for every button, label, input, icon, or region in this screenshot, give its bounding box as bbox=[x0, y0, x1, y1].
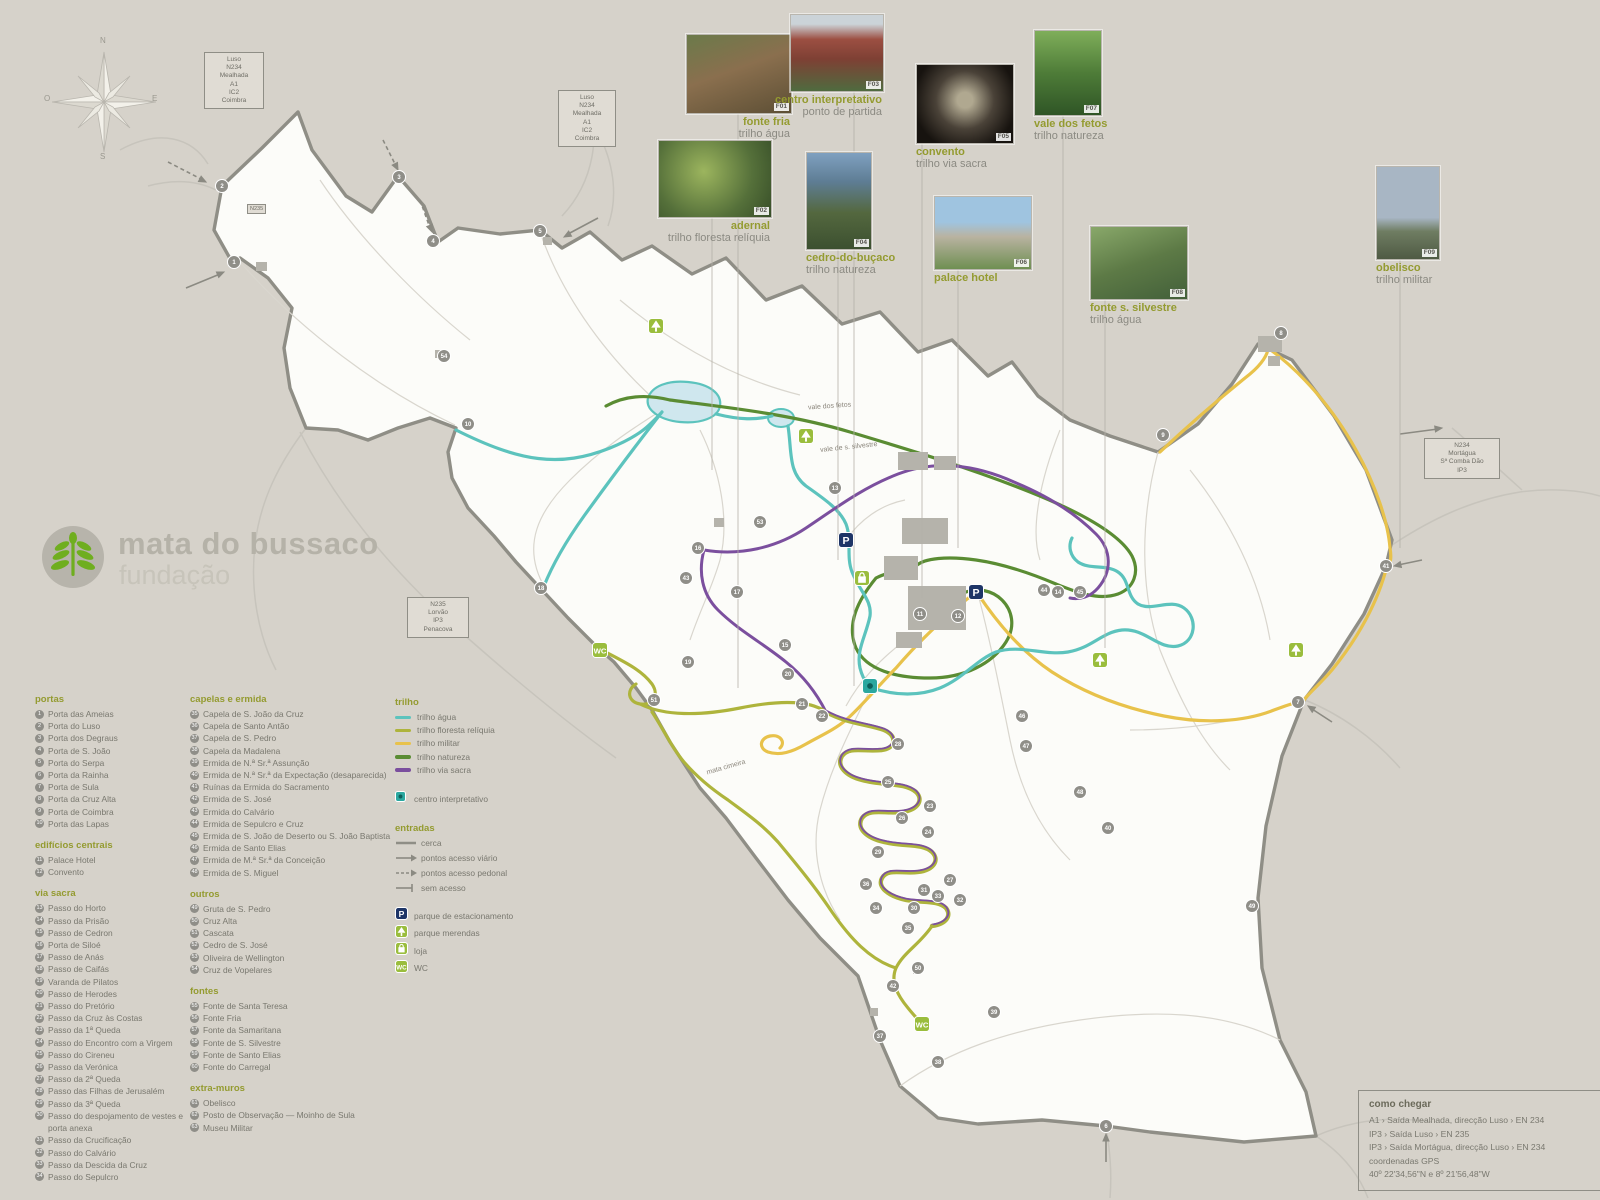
trail-legend-item: trilho militar bbox=[395, 737, 585, 750]
photo-label-palace-hotel: palace hotel bbox=[934, 272, 1064, 284]
svg-text:32: 32 bbox=[957, 898, 964, 904]
legend-centro-interpretativo: centro interpretativo bbox=[395, 791, 585, 807]
map-marker-29: 29 bbox=[872, 846, 885, 859]
svg-text:WC: WC bbox=[594, 647, 607, 656]
map-marker-44: 44 bbox=[1038, 584, 1051, 597]
road-sign-luso-nw: LusoN234MealhadaA1IC2Coimbra bbox=[204, 52, 264, 109]
legend-item: 54Cruz de Vopelares bbox=[190, 964, 402, 976]
svg-text:14: 14 bbox=[1055, 590, 1062, 596]
legend-list-fontes: 55Fonte de Santa Teresa56Fonte Fria57Fon… bbox=[190, 1000, 402, 1073]
map-marker-21: 21 bbox=[796, 698, 809, 711]
map-marker-54: 54 bbox=[438, 350, 451, 363]
legend-item: 60Fonte do Carregal bbox=[190, 1061, 402, 1073]
map-marker-6: 6 bbox=[1100, 1120, 1113, 1133]
legend-header-capelas: capelas e ermida bbox=[190, 694, 402, 705]
como-chegar-title: como chegar bbox=[1369, 1099, 1600, 1110]
legend-list-portas: 1Porta das Ameias2Porta do Luso3Porta do… bbox=[35, 708, 187, 830]
legend-item: 20Passo de Herodes bbox=[35, 988, 187, 1000]
svg-text:21: 21 bbox=[799, 702, 806, 708]
map-facility-wc-icon: WC bbox=[593, 643, 608, 658]
legend-item: 5Porta do Serpa bbox=[35, 757, 187, 769]
map-marker-33: 33 bbox=[932, 890, 945, 903]
svg-text:35: 35 bbox=[905, 926, 912, 932]
legend-item: 37Capela de S. Pedro bbox=[190, 732, 402, 744]
svg-text:50: 50 bbox=[915, 966, 922, 972]
svg-text:43: 43 bbox=[683, 576, 690, 582]
text-line: Mealhada bbox=[562, 110, 612, 118]
road-sign-mortagua: N234MortáguaSª Comba DãoIP3 bbox=[1424, 438, 1500, 479]
photo-label-fonte-s-silvestre: fonte s. silvestretrilho água bbox=[1090, 302, 1240, 326]
legend-item: 44Ermida de Sepulcro e Cruz bbox=[190, 818, 402, 830]
legend-item: 50Cruz Alta bbox=[190, 915, 402, 927]
legend-item: 53Oliveira de Wellington bbox=[190, 952, 402, 964]
map-marker-1: 1 bbox=[228, 256, 241, 269]
map-marker-41: 41 bbox=[1380, 560, 1393, 573]
photo-label-fonte-fria: fonte friatrilho água bbox=[660, 116, 790, 140]
legend-item: 29Passo da 3ª Queda bbox=[35, 1098, 187, 1110]
legend-item: 55Fonte de Santa Teresa bbox=[190, 1000, 402, 1012]
legend-item: 19Varanda de Pilatos bbox=[35, 976, 187, 988]
svg-text:42: 42 bbox=[890, 984, 897, 990]
svg-text:10: 10 bbox=[465, 422, 472, 428]
map-marker-30: 30 bbox=[908, 902, 921, 915]
legend-item: 3Porta dos Degraus bbox=[35, 732, 187, 744]
legend-item: 24Passo do Encontro com a Virgem bbox=[35, 1037, 187, 1049]
legend-item: 45Ermida de S. João de Deserto ou S. Joã… bbox=[190, 830, 402, 842]
legend-item: 4Porta de S. João bbox=[35, 745, 187, 757]
map-marker-14: 14 bbox=[1052, 586, 1065, 599]
text-line: IP3 › Saída Luso › EN 235 bbox=[1369, 1128, 1600, 1142]
compass-rose bbox=[44, 40, 164, 164]
legend-item: 48Ermida de S. Miguel bbox=[190, 867, 402, 879]
legend-column-1: portas 1Porta das Ameias2Porta do Luso3P… bbox=[35, 694, 187, 1183]
svg-text:19: 19 bbox=[685, 660, 692, 666]
svg-text:P: P bbox=[972, 587, 979, 599]
svg-text:P: P bbox=[842, 535, 849, 547]
map-marker-5: 5 bbox=[534, 225, 547, 238]
legend-item: 30Passo do despojamento de vestes e port… bbox=[35, 1110, 187, 1134]
legend-item: 34Passo do Sepulcro bbox=[35, 1171, 187, 1183]
map-marker-48: 48 bbox=[1074, 786, 1087, 799]
entrance-legend-item: sem acesso bbox=[395, 882, 585, 897]
svg-text:30: 30 bbox=[911, 906, 918, 912]
map-facility-shop-icon bbox=[855, 571, 870, 586]
text-line: IP3 › Saída Mortágua, direcção Luso › EN… bbox=[1369, 1141, 1600, 1155]
map-marker-18: 18 bbox=[535, 582, 548, 595]
legend-column-3: trilho trilho águatrilho floresta relíqu… bbox=[395, 697, 585, 977]
legend-list-extra-muros: 61Obelisco62Posto de Observação — Moinho… bbox=[190, 1097, 402, 1134]
compass-o: O bbox=[44, 94, 50, 103]
text-line: A1 bbox=[208, 81, 260, 89]
text-line: Penacova bbox=[411, 626, 465, 634]
legend-item: 43Ermida do Calvário bbox=[190, 806, 402, 818]
svg-text:20: 20 bbox=[785, 672, 792, 678]
legend-header-extra-muros: extra-muros bbox=[190, 1083, 402, 1094]
legend-header-portas: portas bbox=[35, 694, 187, 705]
compass-e: E bbox=[152, 94, 157, 103]
legend-item: 1Porta das Ameias bbox=[35, 708, 187, 720]
legend-item: 10Porta das Lapas bbox=[35, 818, 187, 830]
map-facility-centro-icon bbox=[863, 679, 878, 694]
text-line: Coimbra bbox=[562, 135, 612, 143]
text-line: N234 bbox=[208, 64, 260, 72]
legend-list-entradas: cercapontos acesso viáriopontos acesso p… bbox=[395, 837, 585, 898]
text-line: IC2 bbox=[562, 127, 612, 135]
text-line: IP3 bbox=[411, 617, 465, 625]
legend-item: 21Passo do Pretório bbox=[35, 1000, 187, 1012]
legend-column-2: capelas e ermida 35Capela de S. João da … bbox=[190, 694, 402, 1134]
svg-text:40: 40 bbox=[1105, 826, 1112, 832]
legend-list-trilho: trilho águatrilho floresta relíquiatrilh… bbox=[395, 711, 585, 777]
logo-title: mata do bussaco bbox=[118, 526, 379, 562]
text-line: N235 bbox=[411, 601, 465, 609]
svg-text:44: 44 bbox=[1041, 588, 1048, 594]
svg-text:33: 33 bbox=[935, 894, 942, 900]
legend-header-trilho: trilho bbox=[395, 697, 585, 708]
map-marker-22: 22 bbox=[816, 710, 829, 723]
map-marker-49: 49 bbox=[1246, 900, 1259, 913]
map-marker-32: 32 bbox=[954, 894, 967, 907]
text-line: 40º 22'34,56"N e 8º 21'56,48"W bbox=[1369, 1168, 1600, 1182]
legend-item: 57Fonte da Samaritana bbox=[190, 1024, 402, 1036]
map-marker-27: 27 bbox=[944, 874, 957, 887]
svg-text:53: 53 bbox=[757, 520, 764, 526]
trail-legend-item: trilho natureza bbox=[395, 751, 585, 764]
como-chegar-box: como chegar A1 › Saída Mealhada, direcçã… bbox=[1358, 1090, 1600, 1191]
svg-text:38: 38 bbox=[935, 1060, 942, 1066]
photo-cedro-do-bucaco: F04 bbox=[806, 152, 872, 250]
map-marker-50: 50 bbox=[912, 962, 925, 975]
como-chegar-lines: A1 › Saída Mealhada, direcção Luso › EN … bbox=[1369, 1114, 1600, 1182]
legend-item: 22Passo da Cruz às Costas bbox=[35, 1012, 187, 1024]
legend-header-via-sacra: via sacra bbox=[35, 888, 187, 899]
map-marker-23: 23 bbox=[924, 800, 937, 813]
legend-item: 42Ermida de S. José bbox=[190, 793, 402, 805]
legend-item: 41Ruínas da Ermida do Sacramento bbox=[190, 781, 402, 793]
photo-convento: F05 bbox=[916, 64, 1014, 144]
photo-label-convento: conventotrilho via sacra bbox=[916, 146, 1046, 170]
photo-obelisco: F09 bbox=[1376, 166, 1440, 260]
legend-item: 49Gruta de S. Pedro bbox=[190, 903, 402, 915]
map-marker-9: 9 bbox=[1157, 429, 1170, 442]
map-marker-34: 34 bbox=[870, 902, 883, 915]
text-line: Luso bbox=[208, 56, 260, 64]
text-line: Mealhada bbox=[208, 72, 260, 80]
svg-text:17: 17 bbox=[734, 590, 741, 596]
text-line: Coimbra bbox=[208, 97, 260, 105]
svg-text:29: 29 bbox=[875, 850, 882, 856]
svg-text:39: 39 bbox=[991, 1010, 998, 1016]
map-marker-15: 15 bbox=[779, 639, 792, 652]
text-line: Lorvão bbox=[411, 609, 465, 617]
legend-item: 13Passo do Horto bbox=[35, 902, 187, 914]
svg-text:27: 27 bbox=[947, 878, 954, 884]
map-marker-17: 17 bbox=[731, 586, 744, 599]
svg-text:54: 54 bbox=[441, 354, 448, 360]
compass-s: S bbox=[100, 152, 105, 161]
text-line: Sª Comba Dão bbox=[1428, 458, 1496, 466]
text-line: Mortágua bbox=[1428, 450, 1496, 458]
legend-header-entradas: entradas bbox=[395, 823, 585, 834]
legend-list-via-sacra: 13Passo do Horto14Passo da Prisão15Passo… bbox=[35, 902, 187, 1183]
legend-item: 8Porta da Cruz Alta bbox=[35, 793, 187, 805]
map-marker-7: 7 bbox=[1292, 696, 1305, 709]
map-marker-37: 37 bbox=[874, 1030, 887, 1043]
map-facility-picnic-icon bbox=[799, 429, 814, 444]
map-facility-wc-icon: WC bbox=[915, 1017, 930, 1032]
photo-tag: F09 bbox=[1422, 249, 1437, 257]
legend-item: 63Museu Militar bbox=[190, 1122, 402, 1134]
trail-legend-item: trilho via sacra bbox=[395, 764, 585, 777]
svg-text:36: 36 bbox=[863, 882, 870, 888]
centro-interpretativo-icon bbox=[395, 791, 409, 807]
photo-label-cedro-do-bucaco: cedro-do-buçacotrilho natureza bbox=[806, 252, 936, 276]
legend-item: 58Fonte de S. Silvestre bbox=[190, 1037, 402, 1049]
legend-item: 16Porta de Siloé bbox=[35, 939, 187, 951]
svg-text:23: 23 bbox=[927, 804, 934, 810]
text-line: Luso bbox=[562, 94, 612, 102]
legend-item: 56Fonte Fria bbox=[190, 1012, 402, 1024]
map-facility-p-icon: P bbox=[969, 585, 984, 600]
legend-item: 51Cascata bbox=[190, 927, 402, 939]
legend-item: 61Obelisco bbox=[190, 1097, 402, 1109]
map-facility-picnic-icon bbox=[649, 319, 664, 334]
legend-item: 15Passo de Cedron bbox=[35, 927, 187, 939]
legend-item: 52Cedro de S. José bbox=[190, 939, 402, 951]
legend-item: 32Passo do Calvário bbox=[35, 1147, 187, 1159]
map-marker-4: 4 bbox=[427, 235, 440, 248]
legend-item: 23Passo da 1ª Queda bbox=[35, 1024, 187, 1036]
map-marker-45: 45 bbox=[1074, 586, 1087, 599]
text-line: N234 bbox=[562, 102, 612, 110]
text-line: IC2 bbox=[208, 89, 260, 97]
photo-label-adernal: adernaltrilho floresta relíquia bbox=[610, 220, 770, 244]
entrance-legend-item: cerca bbox=[395, 837, 585, 852]
legend-item: 38Capela da Madalena bbox=[190, 745, 402, 757]
legend-item: 2Porta do Luso bbox=[35, 720, 187, 732]
text-line: coordenadas GPS bbox=[1369, 1155, 1600, 1169]
map-poster: PPWCWC 123456789101841111213141516171920… bbox=[0, 0, 1600, 1200]
facility-legend-item: parque merendas bbox=[395, 925, 585, 943]
svg-text:11: 11 bbox=[917, 612, 924, 618]
map-marker-46: 46 bbox=[1016, 710, 1029, 723]
photo-tag: F06 bbox=[1014, 259, 1029, 267]
svg-text:24: 24 bbox=[925, 830, 932, 836]
compass-n: N bbox=[100, 36, 106, 45]
map-marker-2: 2 bbox=[216, 180, 229, 193]
map-marker-12: 12 bbox=[952, 610, 965, 623]
svg-text:34: 34 bbox=[873, 906, 880, 912]
logo-subtitle: fundação bbox=[119, 560, 230, 591]
svg-text:46: 46 bbox=[1019, 714, 1026, 720]
map-marker-35: 35 bbox=[902, 922, 915, 935]
map-marker-28: 28 bbox=[892, 738, 905, 751]
photo-tag: F08 bbox=[1170, 289, 1185, 297]
photo-label-obelisco: obeliscotrilho militar bbox=[1376, 262, 1496, 286]
map-marker-3: 3 bbox=[393, 171, 406, 184]
svg-text:26: 26 bbox=[899, 816, 906, 822]
road-sign-lorvao: N235LorvãoIP3Penacova bbox=[407, 597, 469, 638]
photo-label-centro-interpretativo: centro interpretativoponto de partida bbox=[702, 94, 882, 118]
svg-text:37: 37 bbox=[877, 1034, 884, 1040]
legend-item: 27Passo da 2ª Queda bbox=[35, 1073, 187, 1085]
map-marker-38: 38 bbox=[932, 1056, 945, 1069]
text-line: IP3 bbox=[1428, 467, 1496, 475]
photo-adernal: F02 bbox=[658, 140, 772, 218]
legend-item: 46Ermida de Santo Elias bbox=[190, 842, 402, 854]
svg-text:P: P bbox=[399, 909, 405, 919]
legend-item: 36Capela de Santo Antão bbox=[190, 720, 402, 732]
text-line: A1 › Saída Mealhada, direcção Luso › EN … bbox=[1369, 1114, 1600, 1128]
legend-item: 47Ermida de M.ª Sr.ª da Conceição bbox=[190, 854, 402, 866]
legend-item: 28Passo das Filhas de Jerusalém bbox=[35, 1085, 187, 1097]
svg-text:41: 41 bbox=[1383, 564, 1390, 570]
map-marker-11: 11 bbox=[914, 608, 927, 621]
map-marker-13: 13 bbox=[829, 482, 842, 495]
legend-list-outros: 49Gruta de S. Pedro50Cruz Alta51Cascata5… bbox=[190, 903, 402, 976]
legend-list-facilities: Pparque de estacionamentoparque merendas… bbox=[395, 907, 585, 977]
trail-legend-item: trilho água bbox=[395, 711, 585, 724]
legend-list-edificios: 11Palace Hotel12Convento bbox=[35, 854, 187, 878]
svg-text:49: 49 bbox=[1249, 904, 1256, 910]
photo-tag: F07 bbox=[1084, 105, 1099, 113]
map-marker-43: 43 bbox=[680, 572, 693, 585]
legend-item: 39Ermida de N.ª Sr.ª Assunção bbox=[190, 757, 402, 769]
map-marker-19: 19 bbox=[682, 656, 695, 669]
facility-legend-item: Pparque de estacionamento bbox=[395, 907, 585, 925]
foundation-logo-icon bbox=[40, 524, 106, 590]
svg-text:13: 13 bbox=[832, 486, 839, 492]
svg-text:WC: WC bbox=[396, 964, 407, 971]
legend-item: 31Passo da Crucificação bbox=[35, 1134, 187, 1146]
photo-centro-interpretativo: F03 bbox=[790, 14, 884, 92]
map-marker-25: 25 bbox=[882, 776, 895, 789]
svg-text:12: 12 bbox=[955, 614, 962, 620]
legend-item: 7Porta de Sula bbox=[35, 781, 187, 793]
legend-item: 33Passo da Descida da Cruz bbox=[35, 1159, 187, 1171]
map-marker-10: 10 bbox=[462, 418, 475, 431]
svg-text:31: 31 bbox=[921, 888, 928, 894]
svg-text:47: 47 bbox=[1023, 744, 1030, 750]
legend-item: 35Capela de S. João da Cruz bbox=[190, 708, 402, 720]
photo-vale-dos-fetos: F07 bbox=[1034, 30, 1102, 116]
legend-item: 12Convento bbox=[35, 866, 187, 878]
legend-item: 11Palace Hotel bbox=[35, 854, 187, 866]
legend-list-capelas: 35Capela de S. João da Cruz36Capela de S… bbox=[190, 708, 402, 879]
trail-legend-item: trilho floresta relíquia bbox=[395, 724, 585, 737]
legend-item: 14Passo da Prisão bbox=[35, 915, 187, 927]
legend-item: 6Porta da Rainha bbox=[35, 769, 187, 781]
photo-tag: F02 bbox=[754, 207, 769, 215]
photo-tag: F04 bbox=[854, 239, 869, 247]
road-sign-luso-n: LusoN234MealhadaA1IC2Coimbra bbox=[558, 90, 616, 147]
svg-text:15: 15 bbox=[782, 643, 789, 649]
map-facility-picnic-icon bbox=[1093, 653, 1108, 668]
legend-item: 25Passo do Cireneu bbox=[35, 1049, 187, 1061]
svg-text:48: 48 bbox=[1077, 790, 1084, 796]
map-marker-47: 47 bbox=[1020, 740, 1033, 753]
map-marker-31: 31 bbox=[918, 884, 931, 897]
map-marker-24: 24 bbox=[922, 826, 935, 839]
facility-legend-item: loja bbox=[395, 942, 585, 960]
legend-item: 26Passo da Verónica bbox=[35, 1061, 187, 1073]
map-marker-42: 42 bbox=[887, 980, 900, 993]
legend-header-edificios: edifícios centrais bbox=[35, 840, 187, 851]
map-marker-53: 53 bbox=[754, 516, 767, 529]
svg-text:45: 45 bbox=[1077, 590, 1084, 596]
photo-fonte-s-silvestre: F08 bbox=[1090, 226, 1188, 300]
map-marker-20: 20 bbox=[782, 668, 795, 681]
photo-tag: F05 bbox=[996, 133, 1011, 141]
map-marker-40: 40 bbox=[1102, 822, 1115, 835]
map-facility-picnic-icon bbox=[1289, 643, 1304, 658]
legend-item: 18Passo de Caifás bbox=[35, 963, 187, 975]
legend-item: 9Porta de Coimbra bbox=[35, 806, 187, 818]
map-marker-26: 26 bbox=[896, 812, 909, 825]
map-marker-51: 51 bbox=[648, 694, 661, 707]
road-tag-n235: N235 bbox=[247, 204, 266, 214]
photo-label-vale-dos-fetos: vale dos fetostrilho natureza bbox=[1034, 118, 1164, 142]
text-line: N234 bbox=[1428, 442, 1496, 450]
legend-item: 62Posto de Observação — Moinho de Sula bbox=[190, 1109, 402, 1121]
svg-text:WC: WC bbox=[916, 1021, 929, 1030]
map-marker-39: 39 bbox=[988, 1006, 1001, 1019]
map-facility-p-icon: P bbox=[839, 533, 854, 548]
legend-item: 59Fonte de Santo Elias bbox=[190, 1049, 402, 1061]
legend-item: 17Passo de Anás bbox=[35, 951, 187, 963]
map-marker-8: 8 bbox=[1275, 327, 1288, 340]
svg-text:16: 16 bbox=[695, 546, 702, 552]
svg-text:18: 18 bbox=[538, 586, 545, 592]
svg-text:51: 51 bbox=[651, 698, 658, 704]
svg-text:22: 22 bbox=[819, 714, 826, 720]
entrance-legend-item: pontos acesso viário bbox=[395, 852, 585, 867]
legend-header-fontes: fontes bbox=[190, 986, 402, 997]
map-marker-16: 16 bbox=[692, 542, 705, 555]
legend-header-outros: outros bbox=[190, 889, 402, 900]
svg-text:28: 28 bbox=[895, 742, 902, 748]
text-line: A1 bbox=[562, 119, 612, 127]
photo-tag: F03 bbox=[866, 81, 881, 89]
entrance-legend-item: pontos acesso pedonal bbox=[395, 867, 585, 882]
legend-item: 40Ermida de N.ª Sr.ª da Expectação (desa… bbox=[190, 769, 402, 781]
photo-palace-hotel: F06 bbox=[934, 196, 1032, 270]
svg-text:25: 25 bbox=[885, 780, 892, 786]
map-marker-36: 36 bbox=[860, 878, 873, 891]
facility-legend-item: WCWC bbox=[395, 960, 585, 978]
